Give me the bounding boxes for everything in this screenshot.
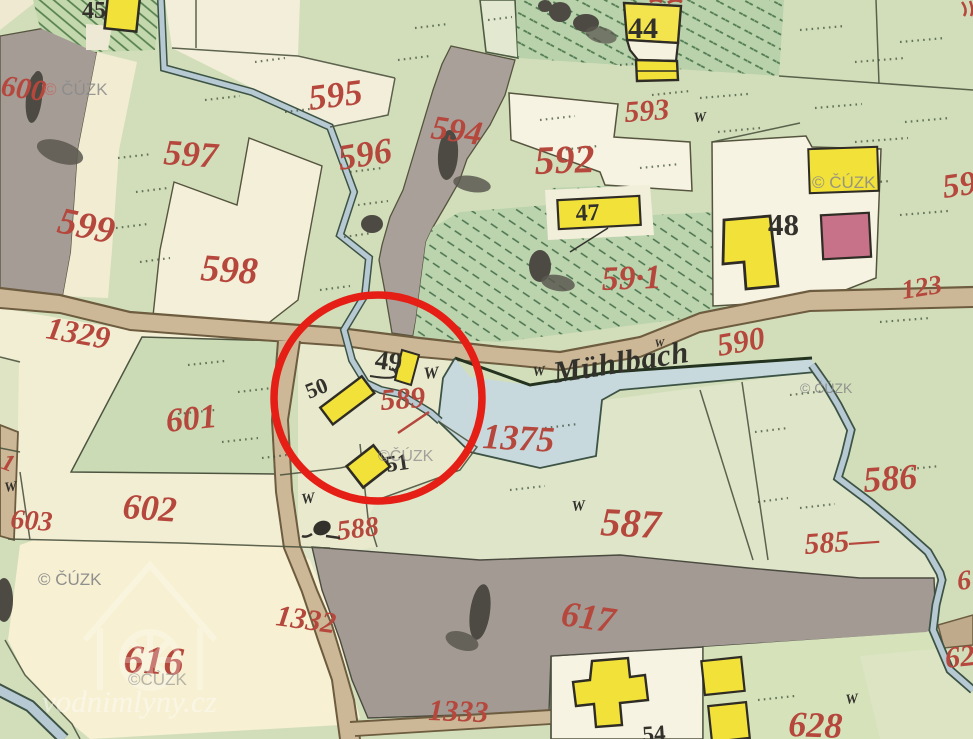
svg-text:592: 592 bbox=[534, 136, 596, 183]
svg-text:593: 593 bbox=[623, 93, 670, 129]
svg-text:45: 45 bbox=[82, 0, 106, 24]
svg-text:©ČÙZK: ©ČÙZK bbox=[128, 670, 187, 689]
svg-text:617: 617 bbox=[559, 593, 620, 640]
svg-text:© ČÚZK: © ČÚZK bbox=[812, 173, 876, 192]
svg-text:54: 54 bbox=[642, 720, 667, 739]
svg-text:© ČÚZK: © ČÚZK bbox=[800, 380, 853, 396]
svg-text:602: 602 bbox=[121, 486, 178, 530]
svg-text:48: 48 bbox=[768, 207, 799, 242]
svg-text:1375: 1375 bbox=[482, 416, 556, 460]
svg-text:586: 586 bbox=[862, 456, 919, 500]
svg-text:600: 600 bbox=[0, 69, 48, 108]
svg-text:595: 595 bbox=[306, 72, 364, 118]
svg-text:123: 123 bbox=[899, 269, 944, 305]
svg-text:© ČÚZK: © ČÚZK bbox=[38, 570, 102, 589]
svg-text:47: 47 bbox=[575, 200, 600, 227]
svg-text:© ČÚZK: © ČÚZK bbox=[44, 80, 108, 99]
svg-text:59: 59 bbox=[940, 165, 973, 206]
svg-text:596: 596 bbox=[335, 130, 395, 178]
svg-text:585—: 585— bbox=[803, 523, 880, 561]
svg-text:598: 598 bbox=[199, 247, 259, 293]
svg-text:597: 597 bbox=[162, 132, 221, 176]
svg-text:vodnimlyny.cz: vodnimlyny.cz bbox=[42, 684, 217, 719]
svg-text:©ČÚZK: ©ČÚZK bbox=[378, 446, 434, 465]
svg-text:49: 49 bbox=[373, 344, 404, 377]
svg-text:601: 601 bbox=[164, 398, 219, 440]
svg-text:628: 628 bbox=[788, 704, 843, 739]
svg-text:594: 594 bbox=[429, 109, 485, 153]
svg-text:59·1: 59·1 bbox=[601, 259, 662, 298]
svg-text:62: 62 bbox=[943, 639, 973, 675]
svg-text:587: 587 bbox=[600, 499, 664, 547]
svg-text:603: 603 bbox=[10, 504, 54, 538]
svg-text:588: 588 bbox=[335, 511, 380, 547]
svg-text:44: 44 bbox=[628, 12, 658, 45]
svg-text:1333: 1333 bbox=[428, 694, 489, 729]
svg-text:589: 589 bbox=[379, 381, 426, 417]
